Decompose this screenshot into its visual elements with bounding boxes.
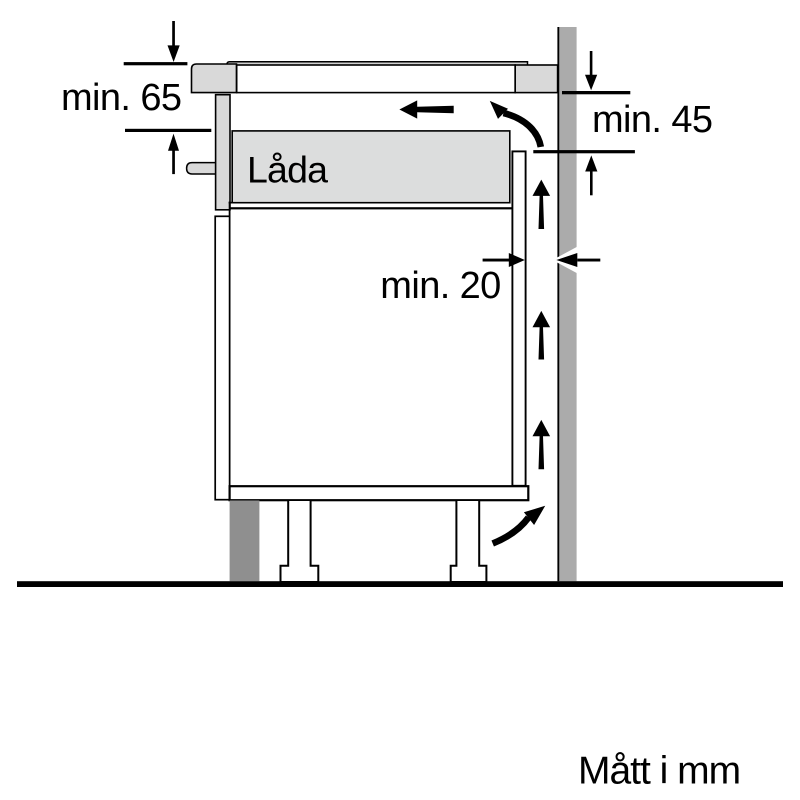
svg-text:min. 65: min. 65 <box>61 77 181 119</box>
svg-text:min. 20: min. 20 <box>380 265 500 307</box>
svg-text:min. 45: min. 45 <box>592 99 712 141</box>
svg-text:Låda: Låda <box>247 148 328 190</box>
svg-text:Mått i mm: Mått i mm <box>578 750 740 793</box>
